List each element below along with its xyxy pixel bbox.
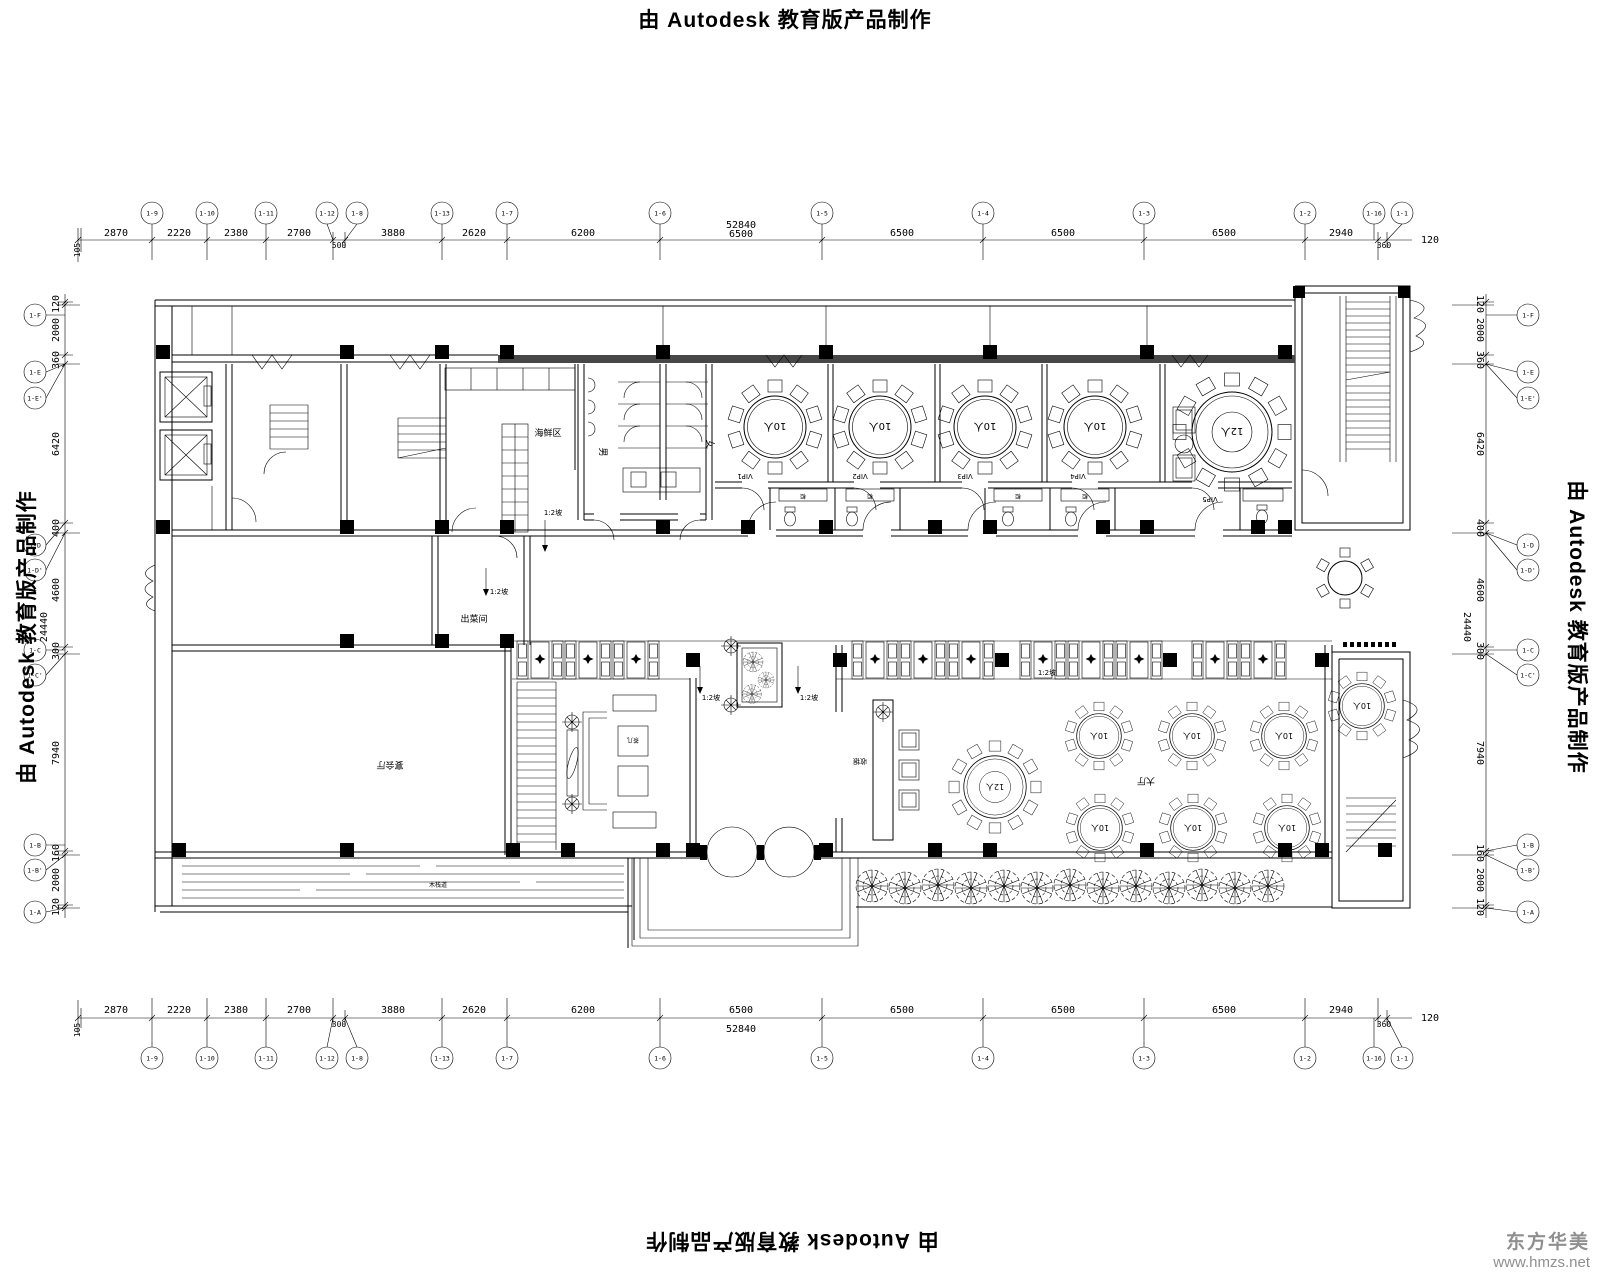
dim-label: 300: [51, 642, 62, 660]
room-label-vip1: VIP1: [737, 472, 753, 480]
dim-label: 120: [1421, 1013, 1439, 1024]
room-label-serving: 出菜间: [460, 613, 487, 625]
slope-label: 1:2坡: [544, 508, 562, 517]
dim-label: 360: [51, 351, 62, 369]
axis-bubble: 1-11: [258, 1055, 274, 1063]
dim-label: 360: [1377, 241, 1392, 250]
axis-bubble: 1-4: [977, 1055, 989, 1063]
table-label: 10人: [1278, 823, 1296, 832]
dim-label: 4600: [1474, 578, 1485, 602]
elevator-bank: [160, 364, 256, 530]
dim-label: 120: [51, 898, 62, 916]
dim-label: 2940: [1329, 228, 1353, 239]
axis-bubble: 1-E': [27, 395, 43, 403]
dim-label: 6500: [890, 228, 914, 239]
axis-bubble: 1-1: [1396, 1055, 1408, 1063]
dimension-col-right: 120 2000 360 6420 400 4600 300 7940 160 …: [1452, 294, 1539, 923]
dim-label: 6500: [890, 1005, 914, 1016]
dim-label: 2620: [462, 228, 486, 239]
dim-label: 400: [1474, 519, 1485, 537]
axis-bubble: 1-D: [29, 542, 41, 550]
table-label: 10人: [1183, 731, 1201, 740]
dim-label: 3880: [381, 1005, 405, 1016]
dim-label: 2940: [1329, 1005, 1353, 1016]
table-label: 10人: [869, 420, 892, 432]
table-label: 10人: [1084, 420, 1107, 432]
cabinet-label: 柜: [1082, 492, 1088, 500]
room-label-vip5: VIP5: [1202, 495, 1218, 503]
toilet-icon: [785, 507, 796, 526]
axis-bubble: 1-B': [27, 867, 43, 875]
axis-bubble: 1-3: [1138, 210, 1150, 218]
floorplan-svg: 105 2870 2220 2380 2700 500 3880 2620 62…: [0, 0, 1600, 1280]
dim-label: 300: [332, 1020, 347, 1029]
banquet-door-curve: [145, 565, 155, 611]
axis-bubble: 1-E': [1520, 395, 1536, 403]
wood-deck: 木栈道: [182, 866, 624, 898]
axis-bubble: 1-13: [434, 210, 450, 218]
dim-label: 160: [51, 844, 62, 862]
axis-bubble: 1-3: [1138, 1055, 1150, 1063]
axis-bubble: 1-5: [816, 210, 828, 218]
dim-label: 7940: [51, 741, 62, 765]
room-label-hall: 大厅: [1137, 775, 1155, 787]
ornament-icon: [562, 794, 582, 814]
axis-bubble: 1-9: [146, 1055, 158, 1063]
dim-label: 6200: [571, 228, 595, 239]
axis-bubble: 1-8: [351, 1055, 363, 1063]
dim-label: 2380: [224, 228, 248, 239]
lounge-area: 茶几: [562, 695, 656, 828]
grid-bubbles-top: 1-9 1-10 1-11 1-12 1-8 1-13 1-7 1-6 1-5 …: [141, 202, 1413, 224]
axis-bubble: 1-12: [319, 1055, 335, 1063]
dim-label: 160: [1474, 844, 1485, 862]
table-label: 10人: [1184, 823, 1202, 832]
room-label-seafood: 海鲜区: [534, 427, 561, 439]
right-stair-tower: [1302, 296, 1426, 496]
slope-label: 1:2坡: [1038, 668, 1056, 677]
axis-bubble: 1-2: [1299, 1055, 1311, 1063]
room-label-wc-women: 女: [704, 439, 716, 448]
dim-label: 2620: [462, 1005, 486, 1016]
dim-total-top: 52840: [726, 220, 756, 231]
dining-hall: 12人 10人 10人 10人 10人 10人 10人 10人 大厅 1:2坡: [949, 668, 1396, 862]
grid-bubbles-bottom: 1-9 1-10 1-11 1-12 1-8 1-13 1-7 1-6 1-5 …: [141, 1047, 1413, 1069]
dim-label: 4600: [51, 578, 62, 602]
table-label: 10人: [1090, 731, 1108, 740]
axis-bubble: 1-8: [351, 210, 363, 218]
dim-label: 7940: [1474, 741, 1485, 765]
axis-bubble: 1-1: [1396, 210, 1408, 218]
toilet-icon: [1066, 507, 1077, 526]
dim-label: 6420: [1474, 432, 1485, 456]
dimension-col-left: 120 2000 360 6420 400 4600 300 7940 160 …: [24, 294, 80, 923]
axis-bubble: 1-10: [199, 210, 215, 218]
dim-label: 3880: [381, 228, 405, 239]
armchair-icon: [1173, 455, 1195, 481]
axis-bubble: 1-6: [654, 1055, 666, 1063]
slope-label: 1:2坡: [490, 587, 508, 596]
axis-bubble: 1-F: [29, 312, 41, 320]
dim-label: 6420: [51, 432, 62, 456]
table-label: 10人: [764, 420, 787, 432]
side-table: [1175, 435, 1193, 453]
structural-wall-band: [498, 355, 1295, 363]
room-label-vip3: VIP3: [957, 472, 973, 480]
room-label-vip2: VIP2: [852, 472, 868, 480]
axis-bubble: 1-10: [199, 1055, 215, 1063]
axis-bubble: 1-F: [1522, 312, 1534, 320]
grid-bubbles-right: 1-F 1-E 1-E' 1-D 1-D' 1-C 1-C' 1-B 1-B' …: [1517, 304, 1539, 923]
ornament-icon: [721, 636, 741, 656]
floorplan: 海鲜区 1:2坡 男 女: [145, 286, 1426, 948]
dim-label: 2220: [167, 228, 191, 239]
vip-rooms: 柜 柜 柜 柜 10人 10人 10人 10人 12人: [715, 364, 1292, 530]
ornament-icon: [562, 712, 582, 732]
axis-bubble: 1-6: [654, 210, 666, 218]
slope-label: 1:2坡: [800, 693, 818, 702]
room-label-vip4: VIP4: [1070, 472, 1086, 480]
axis-bubble: 1-D': [27, 567, 43, 575]
ornament-icon: [721, 695, 741, 715]
planter-tree-icon: [758, 672, 774, 688]
cashier-counter: 收银: [853, 700, 919, 840]
axis-bubble: 1-16: [1366, 1055, 1382, 1063]
planter-tree-icon: [743, 652, 763, 672]
restrooms: 男 女: [578, 364, 716, 540]
dim-label: 2220: [167, 1005, 191, 1016]
axis-bubble: 1-12: [319, 210, 335, 218]
round-table-6: [1317, 548, 1374, 608]
dim-label: 105: [73, 1023, 82, 1038]
dimension-row-top: 105 2870 2220 2380 2700 500 3880 2620 62…: [73, 202, 1439, 262]
dim-total-right: 24440: [1461, 612, 1472, 642]
planter-tree-icon: [743, 685, 762, 704]
dim-label: 2000: [1474, 868, 1485, 892]
axis-bubble: 1-9: [146, 210, 158, 218]
dim-label: 2380: [224, 1005, 248, 1016]
cabinet-label: 柜: [800, 492, 806, 500]
dim-label: 120: [1474, 898, 1485, 916]
dim-label: 6500: [1212, 1005, 1236, 1016]
room-label-banquet: 宴会厅: [376, 759, 403, 771]
table-label: 10人: [1275, 731, 1293, 740]
table-label: 12人: [986, 782, 1004, 791]
axis-bubble: 1-16: [1366, 210, 1382, 218]
toilet-icon: [847, 507, 858, 526]
ornament-icon: [873, 702, 893, 722]
axis-bubble: 1-11: [258, 210, 274, 218]
axis-bubble: 1-A: [29, 909, 41, 917]
tea-table-label: 茶几: [627, 736, 639, 744]
dim-label: 2000: [51, 318, 62, 342]
table-label: 10人: [974, 420, 997, 432]
axis-bubble: 1-4: [977, 210, 989, 218]
tree-row: [856, 869, 1284, 904]
axis-bubble: 1-2: [1299, 210, 1311, 218]
dimension-row-bottom: 105 2870 2220 2380 2700 300 3880 2620 62…: [73, 998, 1439, 1069]
entry-vestibule: 1:2坡 1:2坡: [697, 636, 821, 877]
dim-label: 2700: [287, 228, 311, 239]
dim-total-left: 24440: [39, 612, 50, 642]
cabinet-label: 柜: [867, 492, 873, 500]
axis-bubble: 1-B': [1520, 867, 1536, 875]
table-label: 12人: [1221, 425, 1244, 437]
right-lower-stair: [1346, 700, 1420, 852]
dim-label: 6500: [729, 1005, 753, 1016]
axis-bubble: 1-C': [27, 672, 43, 680]
dim-label: 105: [73, 243, 82, 258]
dim-label: 6500: [1051, 228, 1075, 239]
table-label: 10人: [1353, 701, 1371, 710]
dim-label: 2700: [287, 1005, 311, 1016]
deck-label: 木栈道: [429, 881, 447, 889]
room-label-wc-men: 男: [597, 447, 608, 456]
dim-label: 2000: [51, 868, 62, 892]
serving-room: 出菜间 1:2坡: [432, 536, 530, 645]
columns: [156, 286, 1410, 857]
dim-label: 500: [332, 241, 347, 250]
entry-porch-steps: [632, 858, 858, 946]
cabinet-label: 柜: [1015, 492, 1021, 500]
room-label-cashier: 收银: [853, 757, 867, 766]
axis-bubble: 1-D: [1522, 542, 1534, 550]
axis-bubble: 1-A: [1522, 909, 1534, 917]
stairwell-2: [390, 355, 446, 458]
walkway-slats: [517, 682, 556, 850]
dim-label: 2870: [104, 228, 128, 239]
dim-label: 120: [1421, 235, 1439, 246]
drawing-sheet: 由 Autodesk 教育版产品制作 由 Autodesk 教育版产品制作 由 …: [0, 0, 1600, 1280]
toilet-icon: [1003, 507, 1014, 526]
axis-bubble: 1-C: [1522, 647, 1534, 655]
window-sill-dashes: [1343, 642, 1396, 647]
dim-total-bottom: 52840: [726, 1024, 756, 1035]
axis-bubble: 1-5: [816, 1055, 828, 1063]
dim-label: 360: [1474, 351, 1485, 369]
dim-label: 2870: [104, 1005, 128, 1016]
axis-bubble: 1-E: [1522, 369, 1534, 377]
axis-bubble: 1-C': [1520, 672, 1536, 680]
dim-label: 400: [51, 519, 62, 537]
dim-label: 2000: [1474, 318, 1485, 342]
slope-label: 1:2坡: [702, 693, 720, 702]
axis-bubble: 1-C: [29, 647, 41, 655]
dim-label: 120: [1474, 295, 1485, 313]
axis-bubble: 1-13: [434, 1055, 450, 1063]
stairwell-1: [252, 355, 347, 530]
dim-label: 360: [1377, 1020, 1392, 1029]
axis-bubble: 1-B: [1522, 842, 1534, 850]
dim-label: 300: [1474, 642, 1485, 660]
dim-label: 120: [51, 295, 62, 313]
dim-label: 6500: [1051, 1005, 1075, 1016]
axis-bubble: 1-E: [29, 369, 41, 377]
table-label: 10人: [1091, 823, 1109, 832]
dim-label: 6500: [1212, 228, 1236, 239]
dim-label: 6200: [571, 1005, 595, 1016]
axis-bubble: 1-7: [501, 1055, 513, 1063]
axis-bubble: 1-D': [1520, 567, 1536, 575]
axis-bubble: 1-B: [29, 842, 41, 850]
axis-bubble: 1-7: [501, 210, 513, 218]
